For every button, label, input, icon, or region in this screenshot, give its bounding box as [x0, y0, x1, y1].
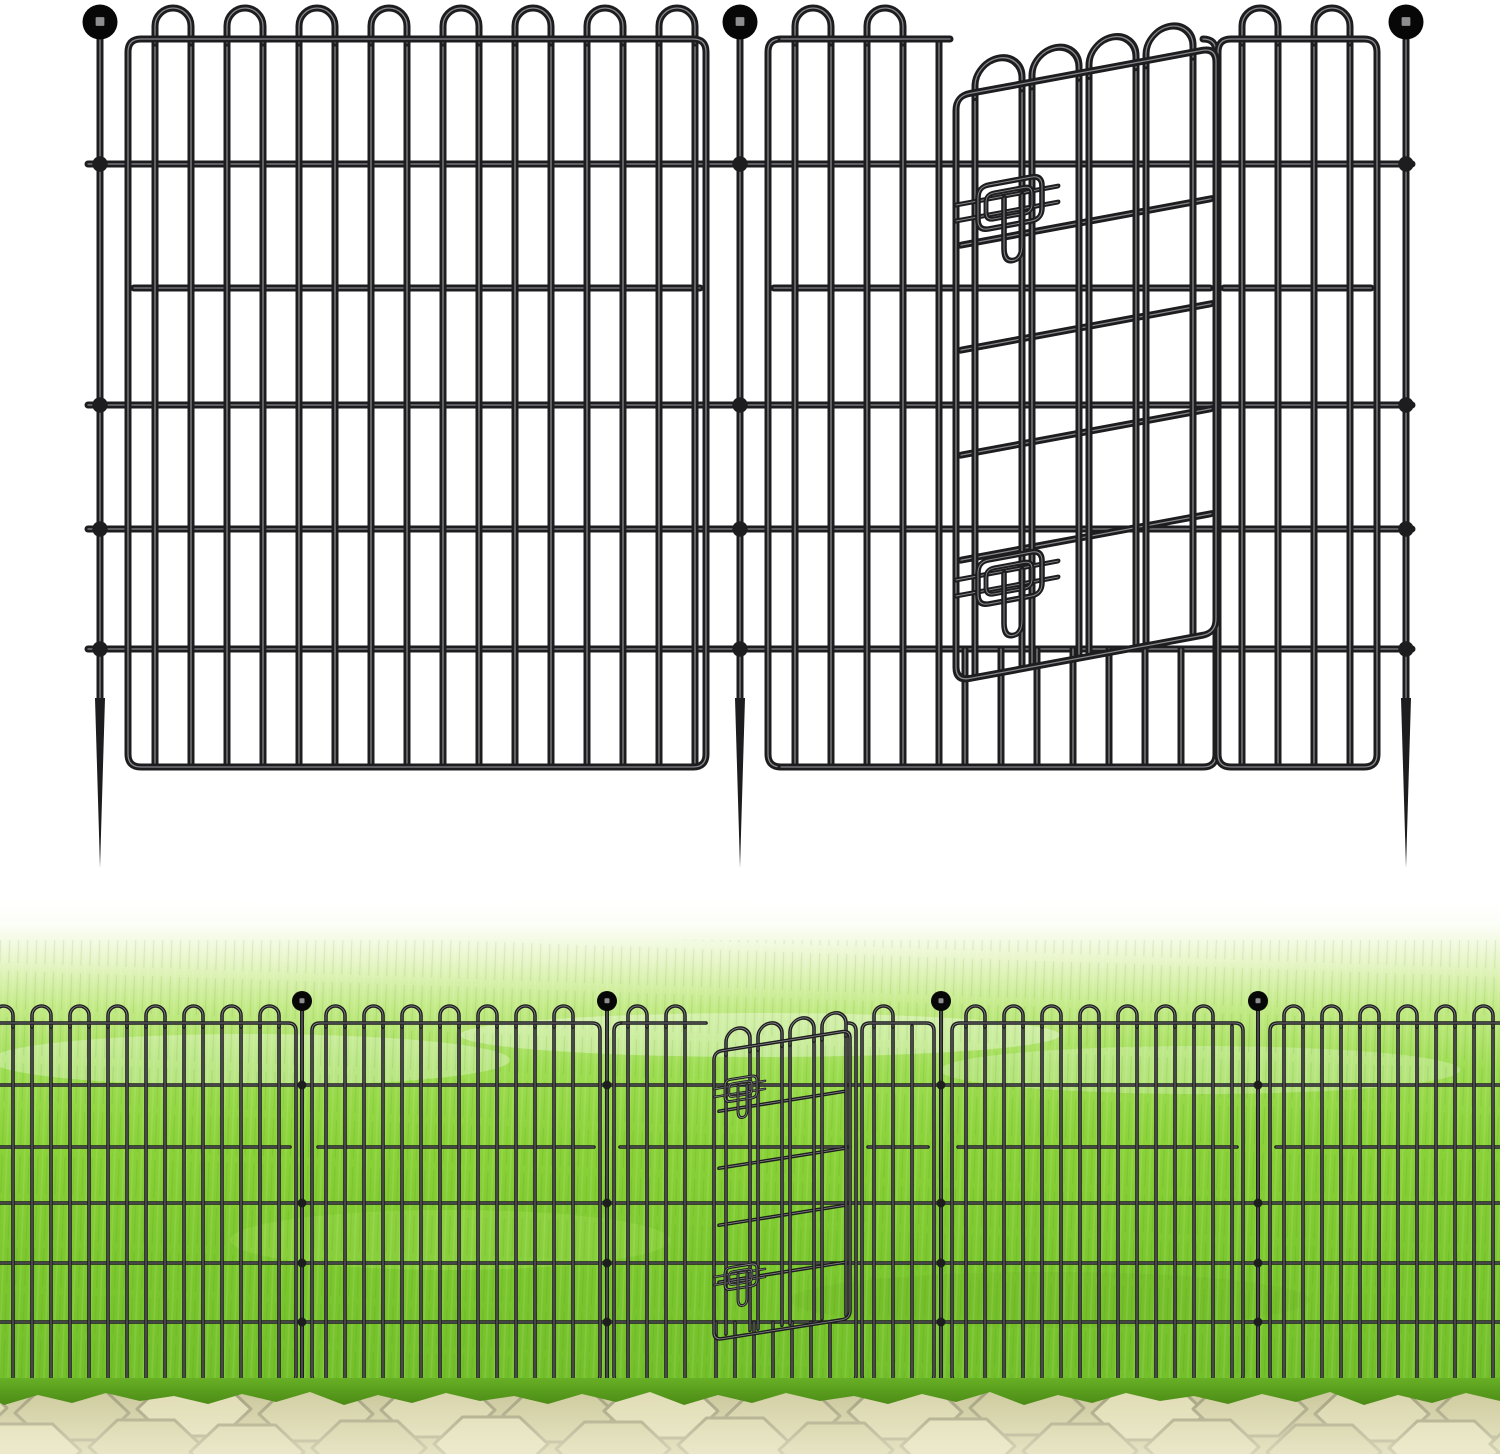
rail-connector: [603, 1199, 612, 1208]
rail-connector: [603, 1081, 612, 1090]
rail-connector: [937, 1318, 946, 1327]
rail-connector: [298, 1318, 307, 1327]
rail-connector: [1254, 1259, 1263, 1268]
rail-connector: [1398, 156, 1413, 171]
rail-connector: [92, 397, 107, 412]
rail-connector: [92, 156, 107, 171]
rail-connector: [1398, 397, 1413, 412]
rail-connector: [1398, 521, 1413, 536]
installed-view: [0, 900, 1500, 1454]
rail-connector: [298, 1199, 307, 1208]
rail-connector: [603, 1318, 612, 1327]
ball-glint: [1256, 998, 1261, 1003]
rail-connector: [732, 521, 747, 536]
page: { "image": { "kind": "e-commerce product…: [0, 0, 1500, 1454]
rail-connector: [732, 156, 747, 171]
ball-glint: [1402, 17, 1411, 26]
rail-connector: [732, 397, 747, 412]
rail-connector: [298, 1259, 307, 1268]
rail-connector: [298, 1081, 307, 1090]
rail-connector: [937, 1081, 946, 1090]
rail-connector: [603, 1259, 612, 1268]
ball-glint: [939, 998, 944, 1003]
ball-glint: [96, 17, 105, 26]
rail-connector: [937, 1259, 946, 1268]
rail-connector: [1398, 641, 1413, 656]
rail-connector: [937, 1199, 946, 1208]
ball-glint: [605, 998, 610, 1003]
product-image: [0, 0, 1500, 1454]
rail-connector: [1254, 1199, 1263, 1208]
rail-connector: [732, 641, 747, 656]
rail-connector: [1254, 1318, 1263, 1327]
ball-glint: [736, 17, 745, 26]
rail-connector: [1254, 1081, 1263, 1090]
ball-glint: [300, 998, 305, 1003]
rail-connector: [92, 521, 107, 536]
fence-illustration: [0, 0, 1500, 1454]
rail-connector: [92, 641, 107, 656]
